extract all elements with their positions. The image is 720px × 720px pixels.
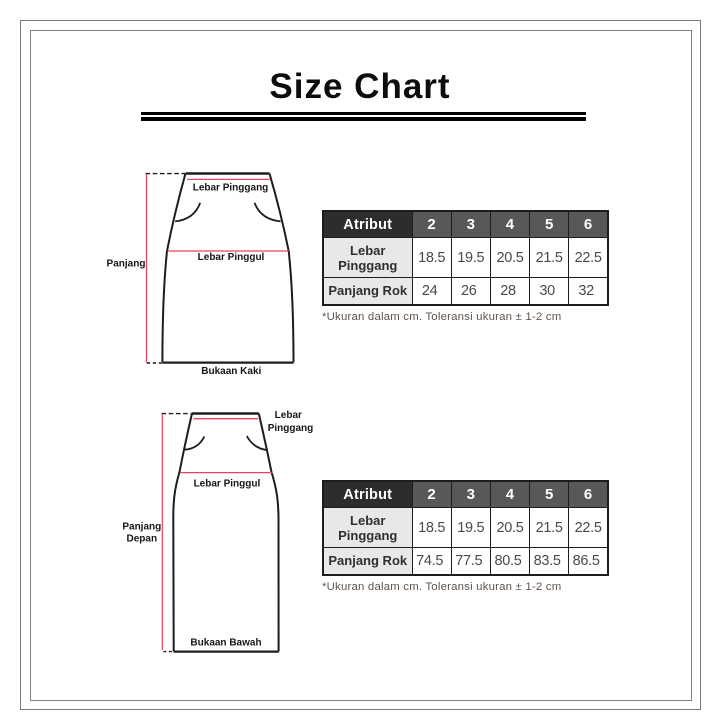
svg-text:Panjang: Panjang: [122, 522, 161, 533]
svg-text:Lebar Pinggul: Lebar Pinggul: [198, 252, 265, 263]
svg-text:Bukaan Bawah: Bukaan Bawah: [190, 637, 261, 648]
svg-text:Bukaan Kaki: Bukaan Kaki: [201, 366, 261, 377]
svg-text:Lebar: Lebar: [275, 410, 302, 421]
svg-text:Panjang: Panjang: [107, 259, 146, 270]
svg-text:Pinggang: Pinggang: [268, 423, 314, 434]
svg-text:Depan: Depan: [127, 534, 158, 545]
svg-text:Lebar Pinggang: Lebar Pinggang: [193, 183, 269, 194]
svg-text:Lebar Pinggul: Lebar Pinggul: [194, 478, 261, 489]
